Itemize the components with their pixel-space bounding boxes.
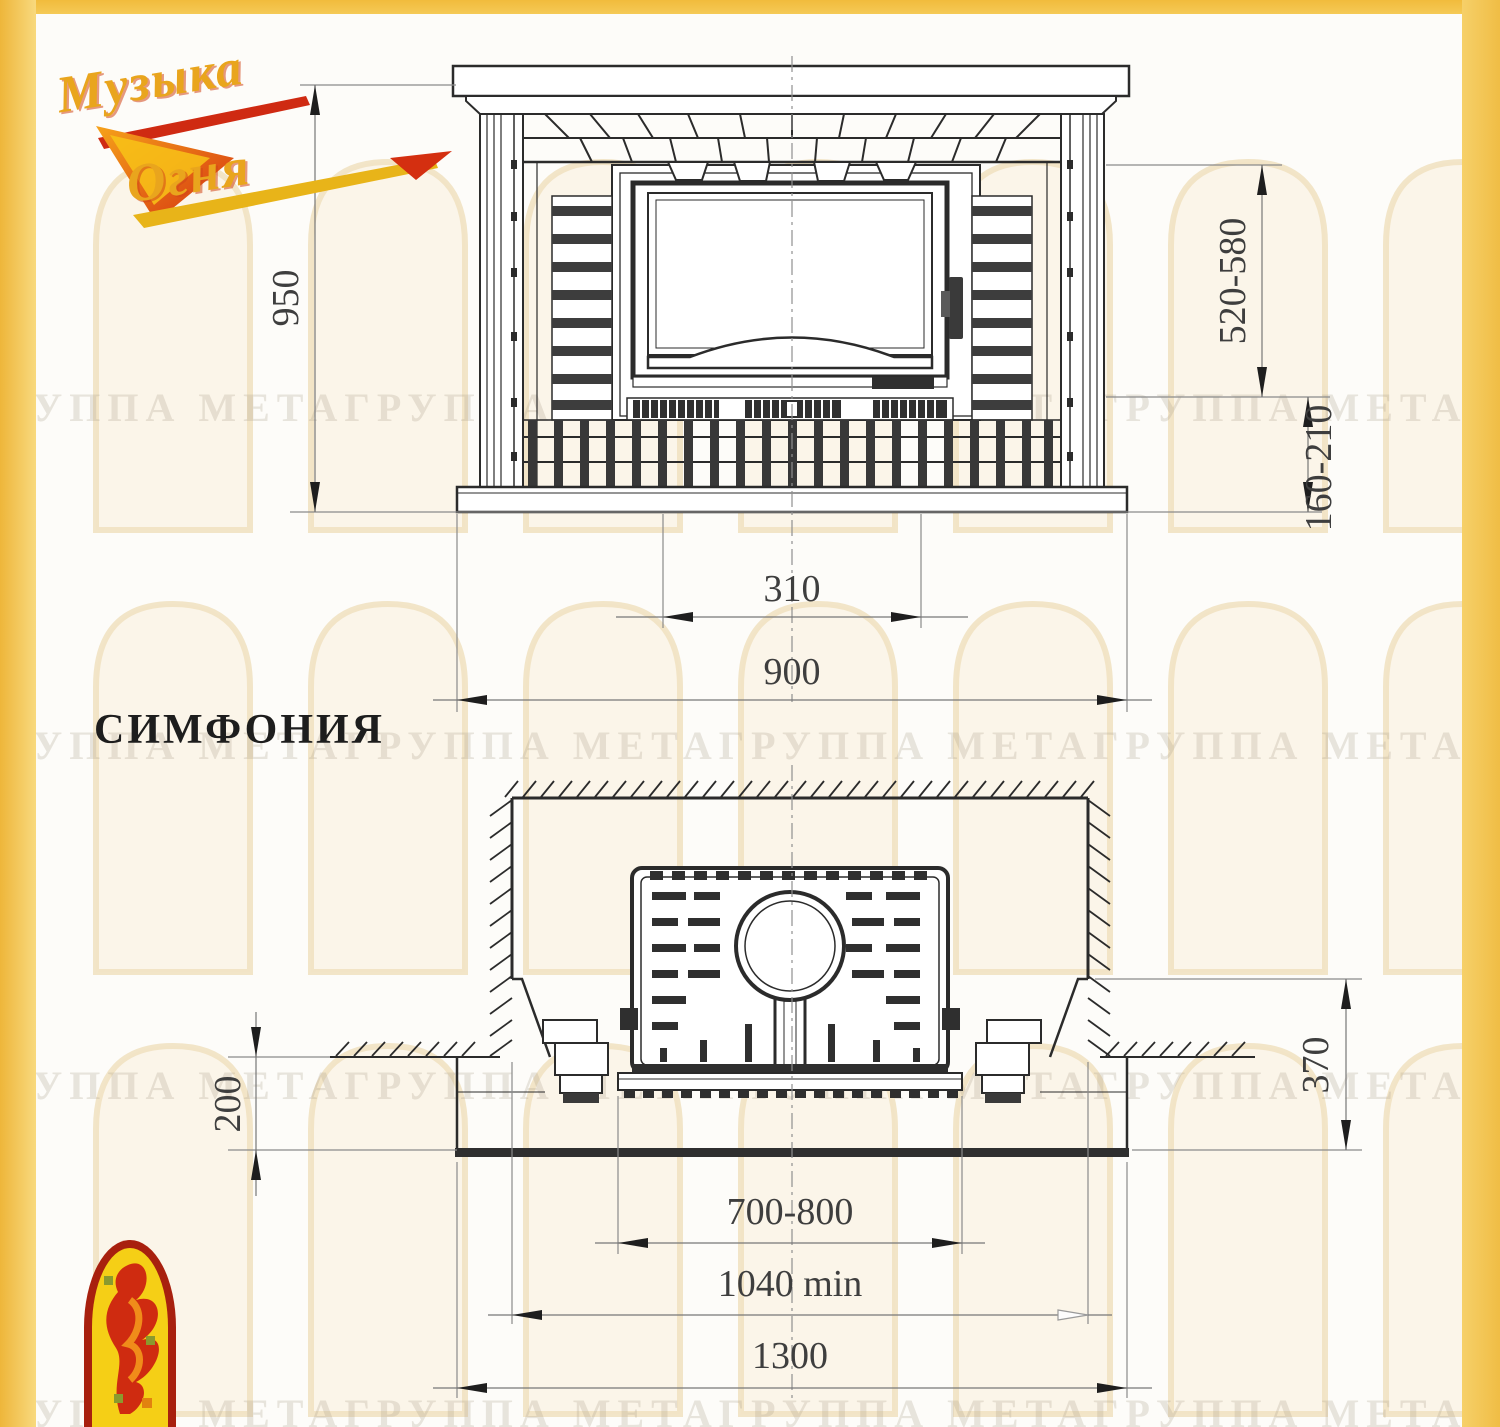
drawing-sheet: ГРУППА МЕТАГРУППА МЕТАГРУППА МЕТАГРУППА … xyxy=(0,0,1500,1427)
dim-base-width: 900 xyxy=(764,651,821,693)
dim-portal-depth: 370 xyxy=(1295,1037,1337,1094)
brand-logo: Музыка Огня xyxy=(38,8,458,243)
dim-hearth-protrusion: 200 xyxy=(207,1076,249,1133)
dim-niche-width: 1040 min xyxy=(718,1263,863,1305)
dim-plinth-height: 160-210 xyxy=(1298,405,1340,532)
vent-grille xyxy=(627,398,953,420)
firebox-door xyxy=(633,183,963,389)
left-border xyxy=(0,0,36,1427)
dim-firebox-opening-height: 520-580 xyxy=(1212,218,1254,345)
front-elevation-drawing xyxy=(453,66,1129,512)
dim-hearth-width: 1300 xyxy=(752,1335,828,1377)
flame-icon xyxy=(92,1248,168,1427)
dim-opening-width: 700-800 xyxy=(727,1191,854,1233)
door-handle xyxy=(949,277,963,339)
right-border xyxy=(1462,0,1500,1427)
dim-overall-height: 950 xyxy=(265,270,307,327)
flame-arch-logo xyxy=(84,1240,176,1427)
brand-logo-flame-icon xyxy=(38,8,458,243)
page-title: СИМФОНИЯ xyxy=(94,706,385,754)
hearth-sill xyxy=(618,1073,962,1098)
dim-grate-width: 310 xyxy=(764,568,821,610)
firebox-plan xyxy=(620,868,960,1072)
